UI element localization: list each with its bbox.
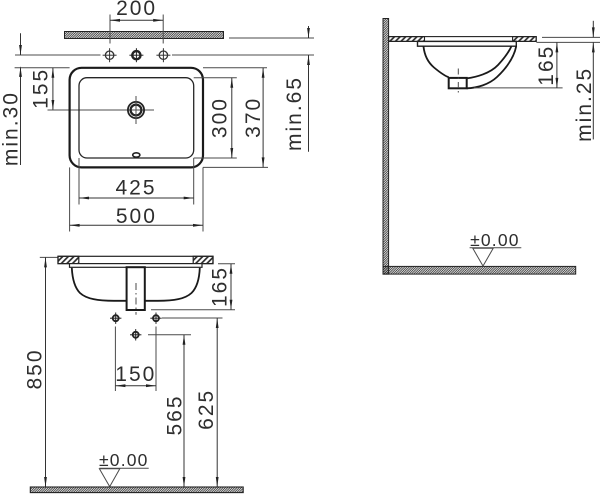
- svg-text:565: 565: [164, 394, 187, 435]
- svg-text:850: 850: [23, 348, 46, 389]
- svg-text:300: 300: [209, 97, 232, 138]
- svg-text:155: 155: [30, 68, 53, 109]
- svg-text:min.30: min.30: [0, 91, 23, 166]
- svg-text:625: 625: [195, 389, 218, 430]
- svg-text:150: 150: [115, 363, 156, 386]
- svg-text:370: 370: [242, 97, 265, 138]
- svg-text:165: 165: [209, 266, 232, 307]
- svg-text:165: 165: [535, 45, 558, 86]
- svg-text:200: 200: [116, 0, 157, 20]
- svg-text:425: 425: [115, 177, 156, 200]
- svg-text:±0.00: ±0.00: [470, 230, 520, 250]
- svg-text:±0.00: ±0.00: [99, 450, 149, 470]
- svg-text:min.65: min.65: [283, 76, 306, 151]
- svg-text:min.25: min.25: [573, 67, 596, 142]
- svg-text:500: 500: [116, 205, 157, 228]
